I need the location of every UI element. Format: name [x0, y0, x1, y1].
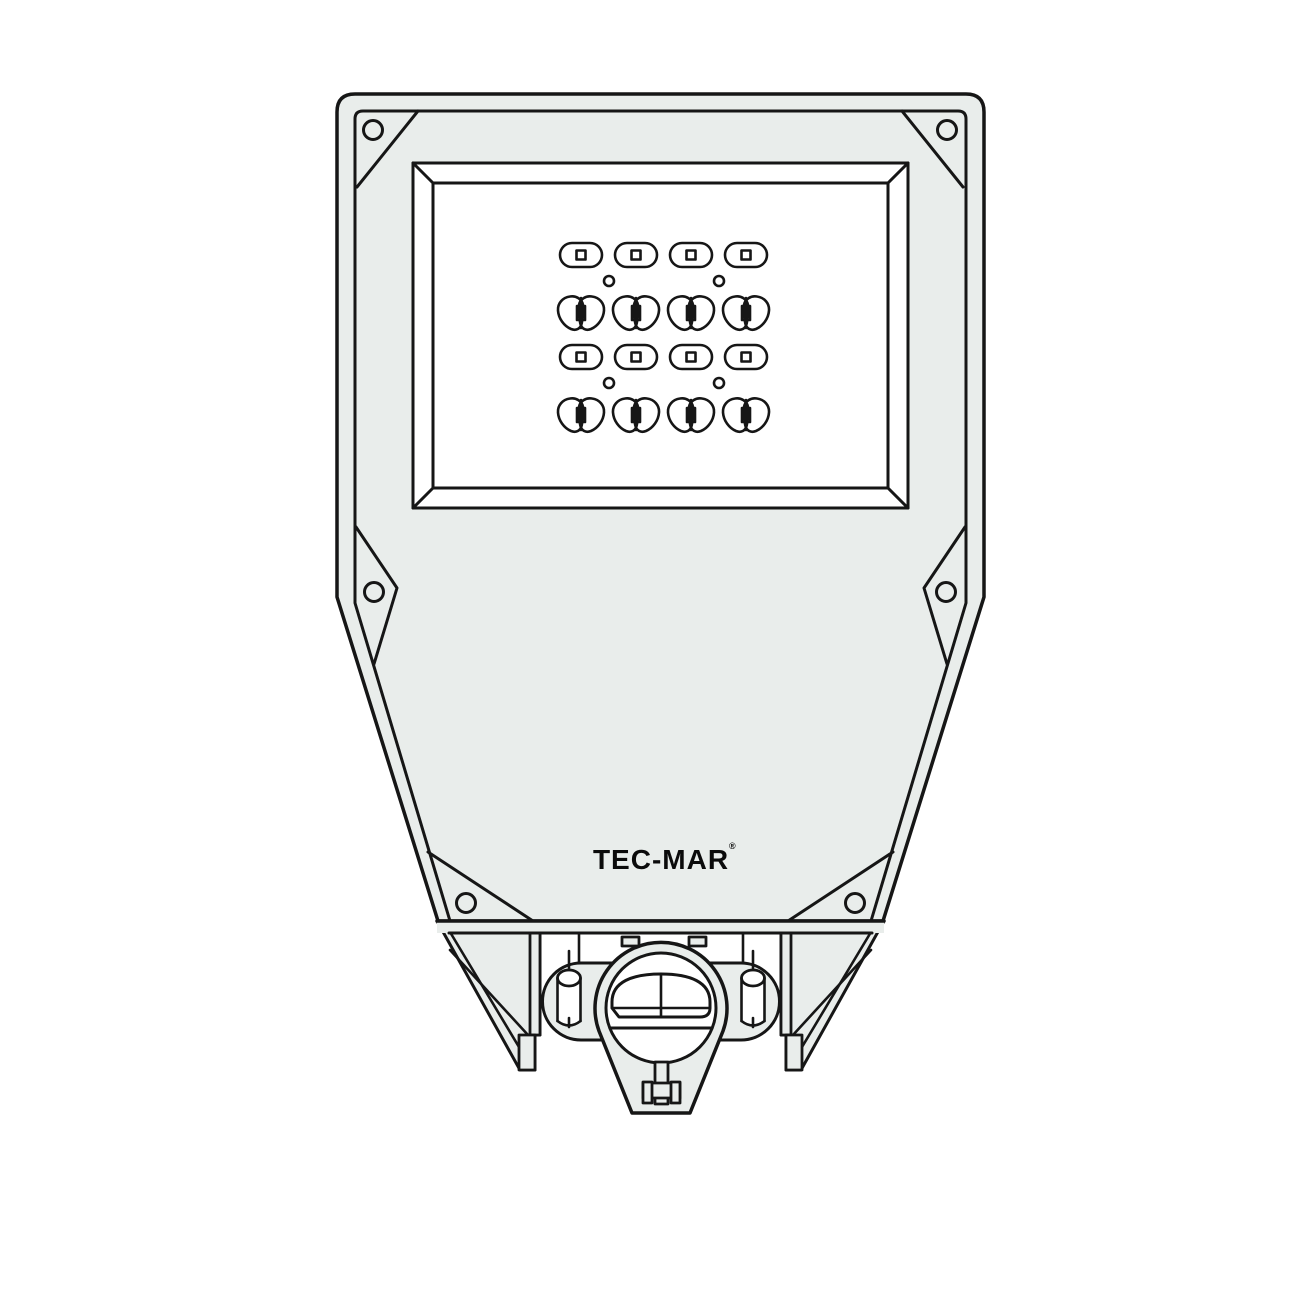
figure-canvas: TEC-MAR ®: [0, 0, 1303, 1303]
bracket-band: [437, 921, 884, 933]
collar-tab-right: [689, 937, 706, 946]
lens-window-inner: [433, 183, 888, 488]
support-member-right: [781, 933, 791, 1035]
support-member-left: [530, 933, 540, 1035]
brand-mark-icon: ®: [729, 841, 736, 851]
support-foot-left: [519, 1035, 535, 1070]
luminaire-technical-drawing: TEC-MAR ®: [0, 0, 1303, 1303]
clamp-bolt-tab-left: [643, 1082, 652, 1103]
collar-tab-left: [622, 937, 639, 946]
support-foot-right: [786, 1035, 802, 1070]
clamp-bolt-tab-right: [671, 1082, 680, 1103]
brand-logo: TEC-MAR: [593, 844, 729, 875]
